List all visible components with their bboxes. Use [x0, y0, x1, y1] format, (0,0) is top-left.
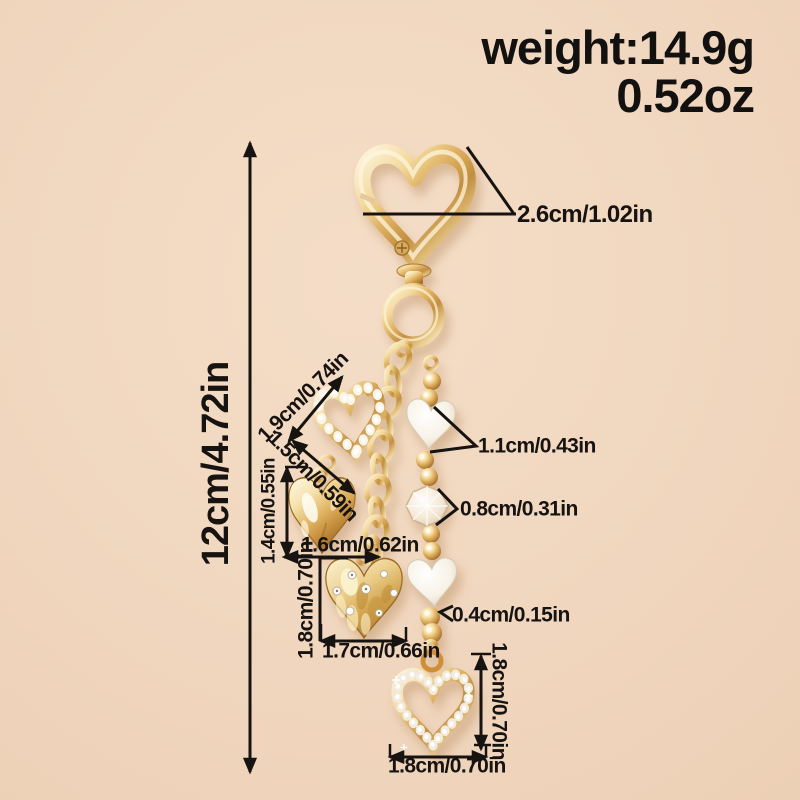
product-photo: weight:14.9g 0.52oz 2.6cm/1.02in 12cm/4.…: [0, 0, 800, 800]
hammered-gold-heart: [326, 546, 402, 638]
white-heart-bead-bottom: [406, 557, 459, 608]
weight-ounces: 0.52oz: [481, 72, 754, 120]
dim-rhinestone-heart-height: 1.8cm/0.70in: [489, 642, 510, 760]
dim-glossy-heart-width: 1.6cm/0.62in: [301, 535, 419, 556]
rhinestone-heart-charm: [392, 675, 473, 751]
dim-glossy-heart-height: 1.4cm/0.55in: [260, 458, 279, 564]
dim-clasp-width: 2.6cm/1.02in: [517, 203, 653, 227]
dim-hammered-heart-width: 1.7cm/0.66in: [322, 641, 440, 662]
weight-grams: weight:14.9g: [481, 24, 754, 72]
dim-hammered-heart-height: 1.8cm/0.70in: [296, 541, 317, 659]
dim-small-gold-bead: 0.4cm/0.15in: [452, 605, 570, 626]
dim-total-length: 12cm/4.72in: [197, 362, 235, 566]
dim-white-heart-bead: 1.1cm/0.43in: [478, 436, 596, 457]
swivel-connector: [385, 264, 439, 342]
heart-clasp: [359, 152, 467, 259]
weight-text: weight:14.9g 0.52oz: [481, 24, 754, 121]
chain: [364, 341, 413, 563]
dim-crystal-bead: 0.8cm/0.31in: [460, 499, 578, 520]
dim-rhinestone-heart-width: 1.8cm/0.70in: [388, 756, 506, 777]
